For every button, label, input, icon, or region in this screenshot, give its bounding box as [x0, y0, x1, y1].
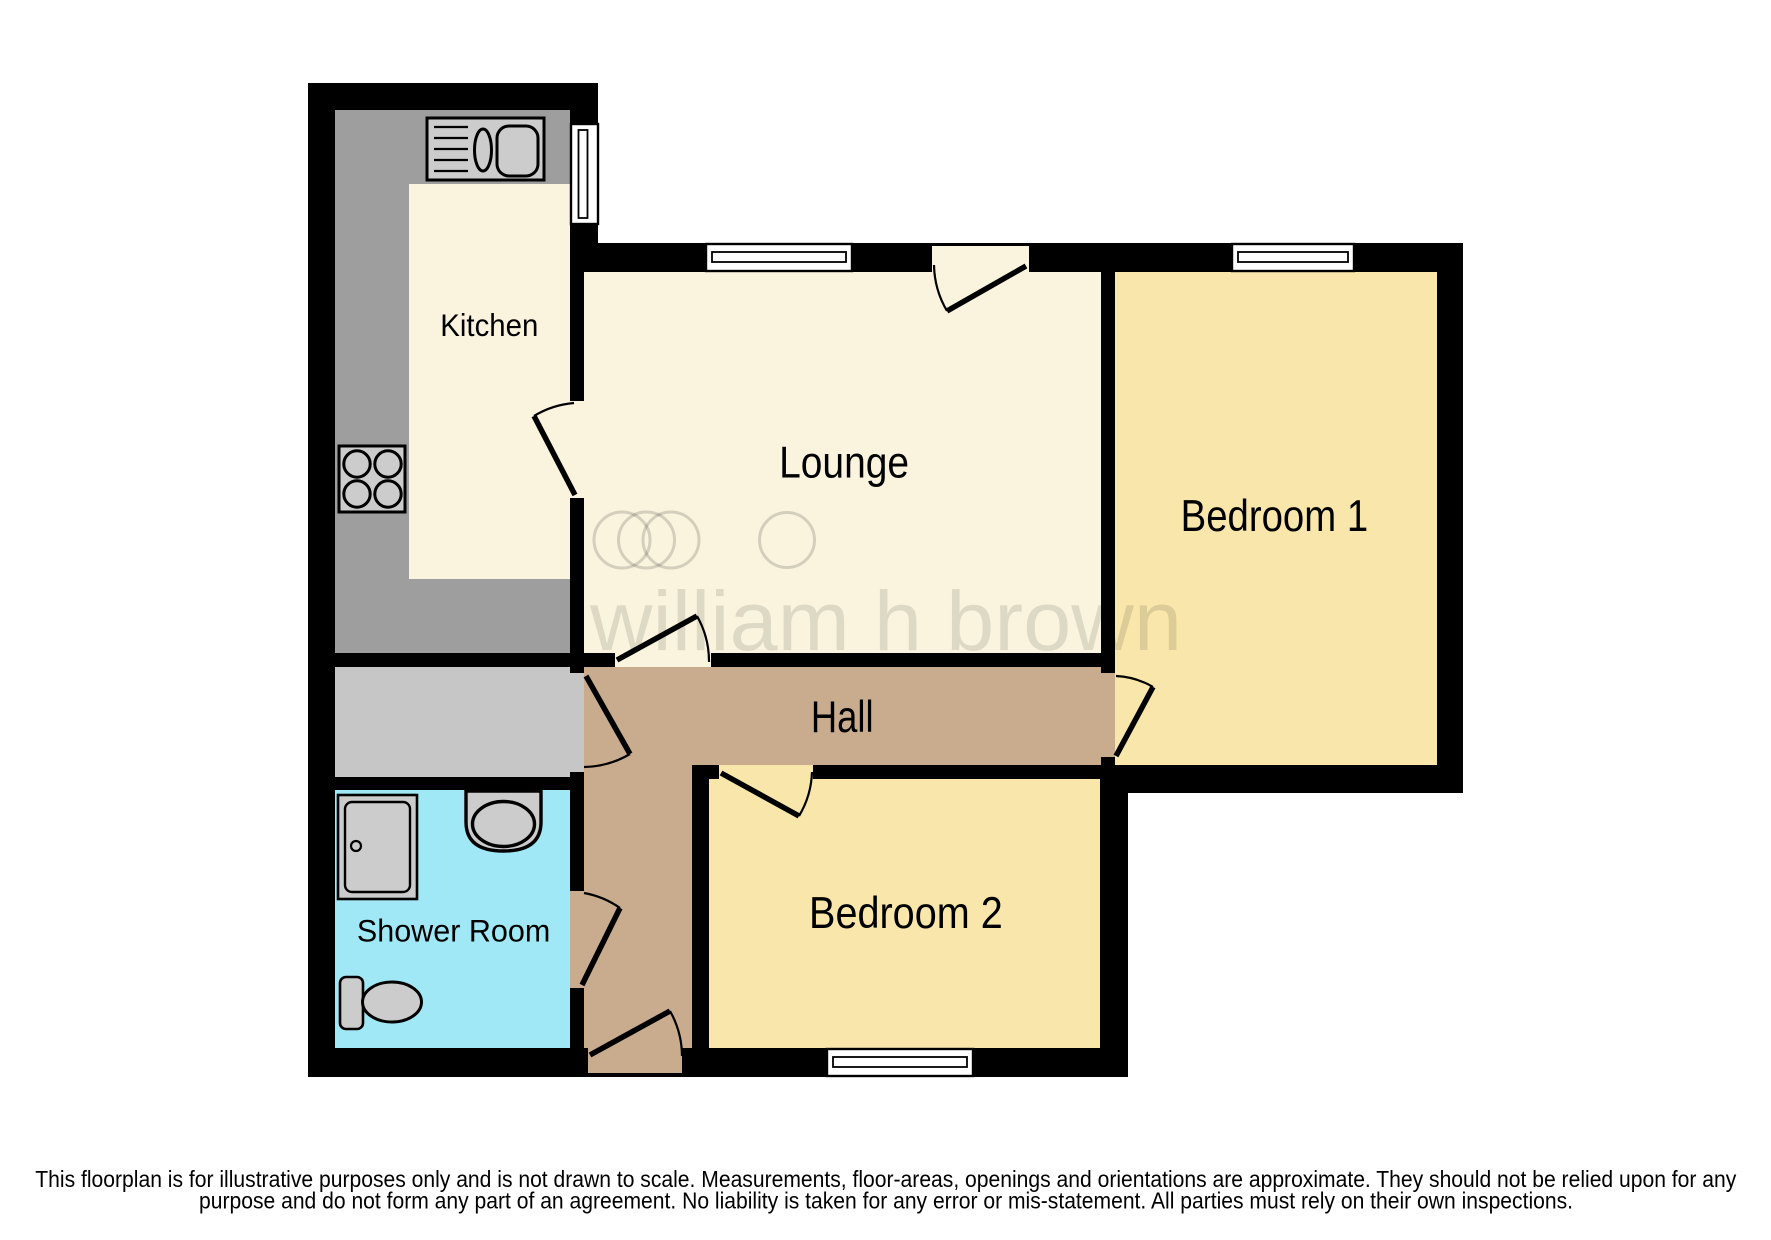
svg-text:Bedroom 2: Bedroom 2: [809, 889, 1003, 938]
svg-text:Lounge: Lounge: [779, 438, 909, 487]
svg-text:purpose and do not form any pa: purpose and do not form any part of an a…: [199, 1188, 1573, 1214]
svg-text:Kitchen: Kitchen: [440, 307, 538, 343]
svg-text:Shower Room: Shower Room: [357, 913, 551, 949]
svg-text:Hall: Hall: [811, 693, 874, 742]
svg-text:Bedroom 1: Bedroom 1: [1181, 492, 1369, 541]
